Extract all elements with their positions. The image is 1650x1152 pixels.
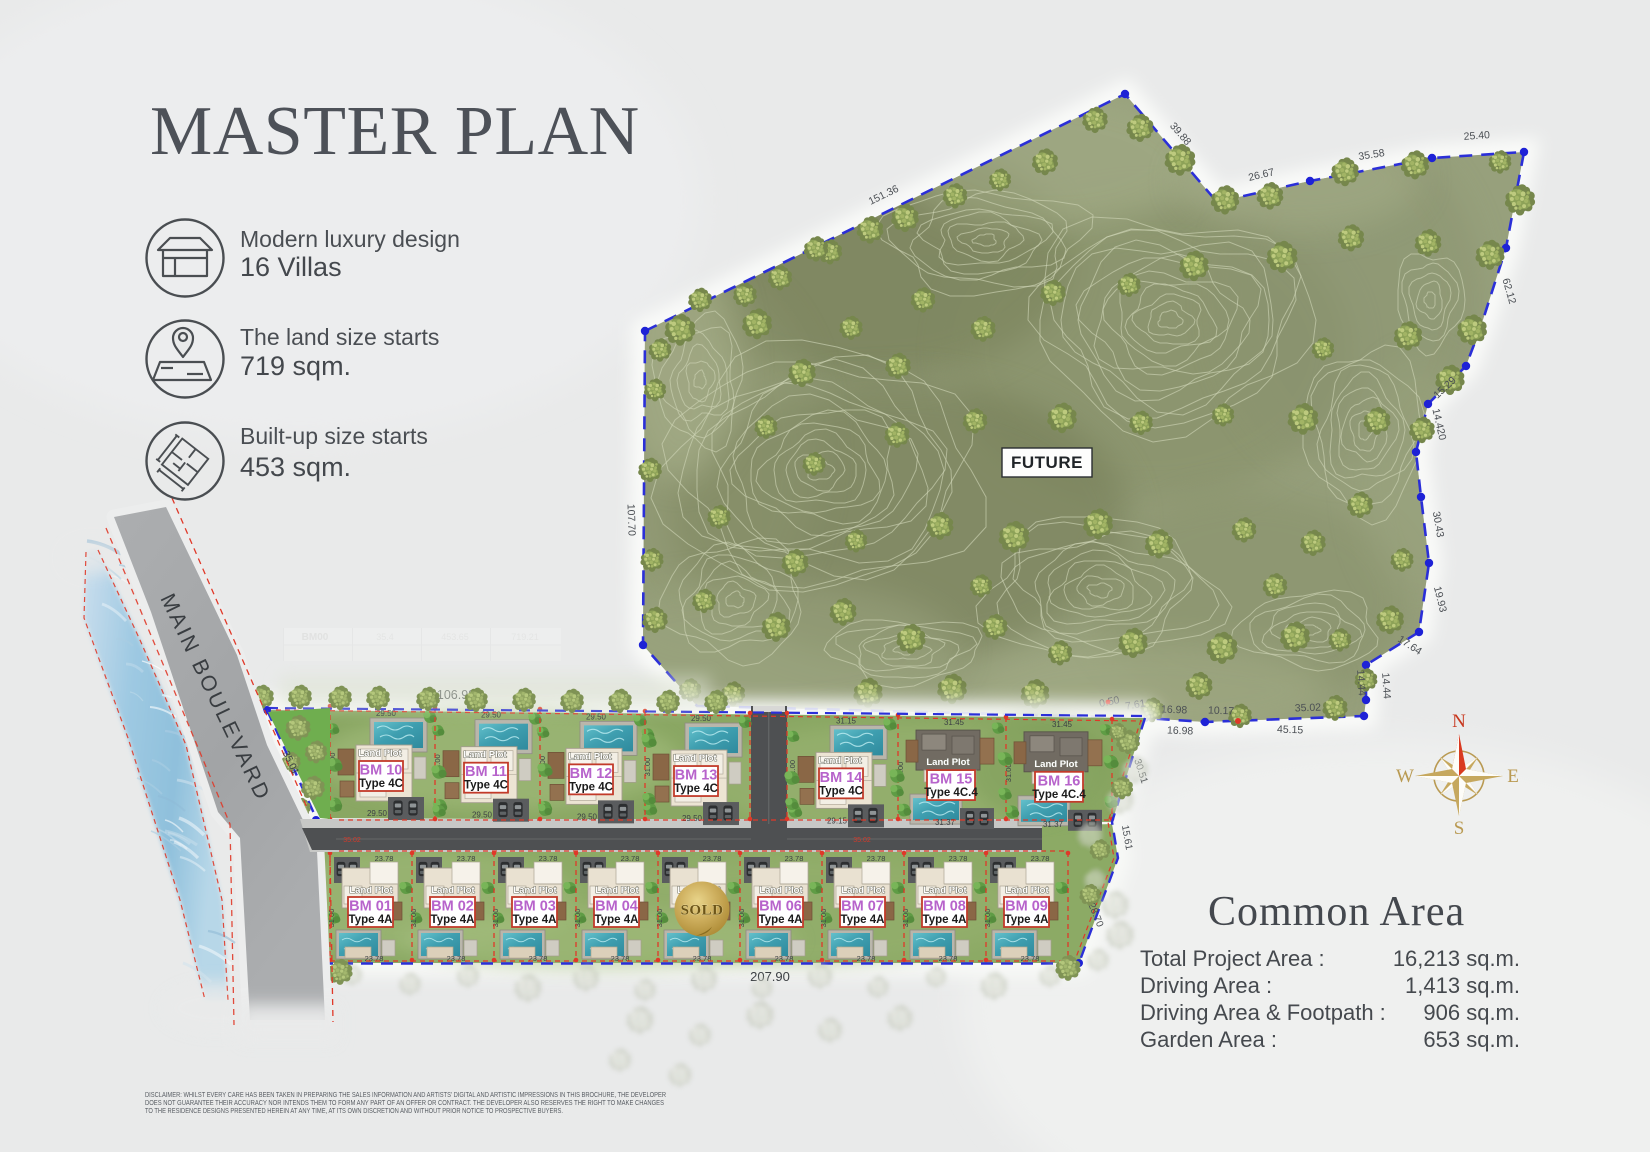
svg-text:453.65: 453.65: [441, 632, 469, 642]
svg-text:Type 4A: Type 4A: [431, 914, 475, 926]
svg-text:Type 4C: Type 4C: [819, 785, 863, 797]
svg-text:BM 02: BM 02: [431, 899, 474, 915]
svg-text:Common Area: Common Area: [1208, 889, 1465, 935]
svg-text:Type 4A: Type 4A: [841, 914, 885, 926]
svg-text:BM 01: BM 01: [349, 899, 392, 915]
svg-text:14.44: 14.44: [1354, 669, 1368, 696]
svg-text:N: N: [1452, 711, 1466, 732]
svg-text:31.00: 31.00: [655, 909, 664, 928]
svg-text:45.15: 45.15: [1277, 724, 1304, 737]
svg-text:719.21: 719.21: [511, 632, 539, 642]
svg-text:31.00: 31.00: [901, 909, 910, 928]
svg-text:Type 4C: Type 4C: [359, 778, 403, 790]
svg-text:29.50: 29.50: [472, 811, 493, 820]
svg-text:29.50: 29.50: [376, 709, 397, 718]
svg-text:31.00: 31.00: [737, 909, 746, 928]
svg-text:Type 4A: Type 4A: [513, 914, 557, 926]
svg-text:31.00: 31.00: [819, 909, 828, 928]
svg-text:29.50: 29.50: [481, 711, 502, 720]
svg-text:35.02: 35.02: [343, 837, 361, 844]
svg-text:Land Plot: Land Plot: [595, 885, 639, 896]
svg-text:23.78: 23.78: [857, 954, 876, 963]
svg-text:Built-up size starts: Built-up size starts: [240, 423, 428, 449]
svg-text:Land Plot: Land Plot: [1005, 885, 1049, 896]
svg-text:31.00: 31.00: [409, 909, 418, 928]
svg-text:Land Plot: Land Plot: [818, 755, 862, 766]
svg-text:BM 10: BM 10: [360, 763, 403, 779]
svg-text:653 sq.m.: 653 sq.m.: [1423, 1027, 1520, 1052]
svg-text:35.4: 35.4: [376, 632, 394, 642]
svg-text:31.45: 31.45: [944, 718, 965, 727]
svg-text:Type 4C: Type 4C: [464, 780, 508, 792]
svg-text:35.02: 35.02: [1295, 702, 1322, 715]
svg-text:23.78: 23.78: [539, 854, 558, 863]
svg-text:BM 16: BM 16: [1038, 773, 1081, 789]
svg-text:Driving Area & Footpath :: Driving Area & Footpath :: [1140, 1000, 1386, 1025]
svg-text:23.78: 23.78: [939, 954, 958, 963]
svg-text:BM 06: BM 06: [759, 899, 802, 915]
svg-text:23.78: 23.78: [703, 854, 722, 863]
svg-text:453 sqm.: 453 sqm.: [240, 452, 351, 482]
svg-text:W: W: [1396, 766, 1414, 787]
svg-text:BM 04: BM 04: [595, 899, 638, 915]
svg-text:23.78: 23.78: [621, 854, 640, 863]
svg-text:1,413 sq.m.: 1,413 sq.m.: [1405, 973, 1520, 998]
svg-text:107.70: 107.70: [624, 504, 637, 537]
svg-text:Land Plot: Land Plot: [923, 885, 967, 896]
svg-text:23.78: 23.78: [611, 954, 630, 963]
svg-text:23.78: 23.78: [365, 954, 384, 963]
svg-text:31.00: 31.00: [573, 909, 582, 928]
svg-text:Driving Area :: Driving Area :: [1140, 973, 1272, 998]
svg-text:Land Plot: Land Plot: [463, 750, 507, 761]
svg-text:BM 12: BM 12: [570, 766, 613, 782]
svg-text:BM 11: BM 11: [465, 764, 507, 780]
svg-text:Type 4A: Type 4A: [595, 914, 639, 926]
svg-text:31.45: 31.45: [1052, 720, 1073, 729]
svg-text:16 Villas: 16 Villas: [240, 252, 342, 282]
svg-text:29.15: 29.15: [827, 816, 848, 825]
svg-text:BM00: BM00: [302, 632, 329, 643]
svg-text:35.02: 35.02: [853, 837, 871, 844]
svg-text:Type 4A: Type 4A: [923, 914, 967, 926]
svg-text:31.00: 31.00: [983, 909, 992, 928]
svg-text:Land Plot: Land Plot: [568, 751, 612, 762]
svg-text:Land Plot: Land Plot: [759, 885, 803, 896]
svg-text:BM 03: BM 03: [513, 899, 556, 915]
svg-text:Land Plot: Land Plot: [349, 885, 393, 896]
svg-text:Garden Area :: Garden Area :: [1140, 1027, 1277, 1052]
svg-text:23.78: 23.78: [447, 954, 466, 963]
svg-text:31.37: 31.37: [1043, 820, 1064, 829]
svg-text:Land Plot: Land Plot: [673, 753, 717, 764]
svg-text:Type 4C: Type 4C: [674, 783, 718, 795]
svg-text:Land Plot: Land Plot: [926, 757, 970, 768]
svg-text:BM 08: BM 08: [923, 899, 966, 915]
svg-text:23.78: 23.78: [1031, 854, 1050, 863]
svg-text:23.78: 23.78: [693, 954, 712, 963]
svg-text:BM 15: BM 15: [930, 772, 973, 788]
svg-text:E: E: [1507, 766, 1519, 787]
svg-text:14.44: 14.44: [1379, 672, 1393, 699]
svg-text:23.78: 23.78: [867, 854, 886, 863]
svg-text:MASTER PLAN: MASTER PLAN: [150, 93, 640, 170]
svg-text:23.78: 23.78: [1021, 954, 1040, 963]
svg-text:23.78: 23.78: [785, 854, 804, 863]
svg-text:SOLD: SOLD: [681, 903, 724, 919]
svg-text:Land Plot: Land Plot: [513, 885, 557, 896]
svg-text:23.78: 23.78: [529, 954, 548, 963]
svg-text:TO THE RESIDENCE DESIGNS PRESE: TO THE RESIDENCE DESIGNS PRESENTED HEREI…: [145, 1106, 563, 1115]
svg-text:23.78: 23.78: [457, 854, 476, 863]
svg-text:Type 4A: Type 4A: [1005, 914, 1049, 926]
svg-text:BM 07: BM 07: [841, 899, 884, 915]
svg-text:BM 13: BM 13: [675, 768, 718, 784]
svg-text:16.98: 16.98: [1161, 704, 1188, 717]
svg-text:Land Plot: Land Plot: [1034, 759, 1078, 770]
svg-text:BM 14: BM 14: [820, 770, 863, 786]
svg-text:10.17: 10.17: [1208, 705, 1235, 718]
svg-text:Type 4A: Type 4A: [349, 914, 393, 926]
svg-text:Total Project Area :: Total Project Area :: [1140, 946, 1325, 971]
svg-text:29.50: 29.50: [367, 809, 388, 818]
svg-text:S: S: [1454, 818, 1465, 839]
svg-text:Land Plot: Land Plot: [431, 885, 475, 896]
svg-text:Type 4C.4: Type 4C.4: [924, 787, 978, 799]
svg-text:23.78: 23.78: [775, 954, 794, 963]
svg-text:Type 4A: Type 4A: [759, 914, 803, 926]
svg-text:Land Plot: Land Plot: [358, 748, 402, 759]
svg-text:23.78: 23.78: [949, 854, 968, 863]
svg-text:The land size starts: The land size starts: [240, 324, 439, 350]
svg-text:Modern luxury design: Modern luxury design: [240, 226, 460, 252]
svg-text:25.40: 25.40: [1463, 129, 1490, 143]
svg-text:31.00: 31.00: [491, 909, 500, 928]
svg-text:29.50: 29.50: [682, 814, 703, 823]
svg-text:16,213 sq.m.: 16,213 sq.m.: [1393, 946, 1520, 971]
svg-text:23.78: 23.78: [375, 854, 394, 863]
svg-text:Land Plot: Land Plot: [841, 885, 885, 896]
svg-text:906 sq.m.: 906 sq.m.: [1423, 1000, 1520, 1025]
svg-text:FUTURE: FUTURE: [1011, 453, 1083, 472]
svg-text:Type 4C.4: Type 4C.4: [1032, 789, 1086, 801]
svg-text:Type 4C: Type 4C: [569, 781, 613, 793]
svg-text:719 sqm.: 719 sqm.: [240, 351, 351, 381]
svg-text:16.98: 16.98: [1167, 725, 1194, 738]
svg-text:BM 09: BM 09: [1005, 899, 1048, 915]
